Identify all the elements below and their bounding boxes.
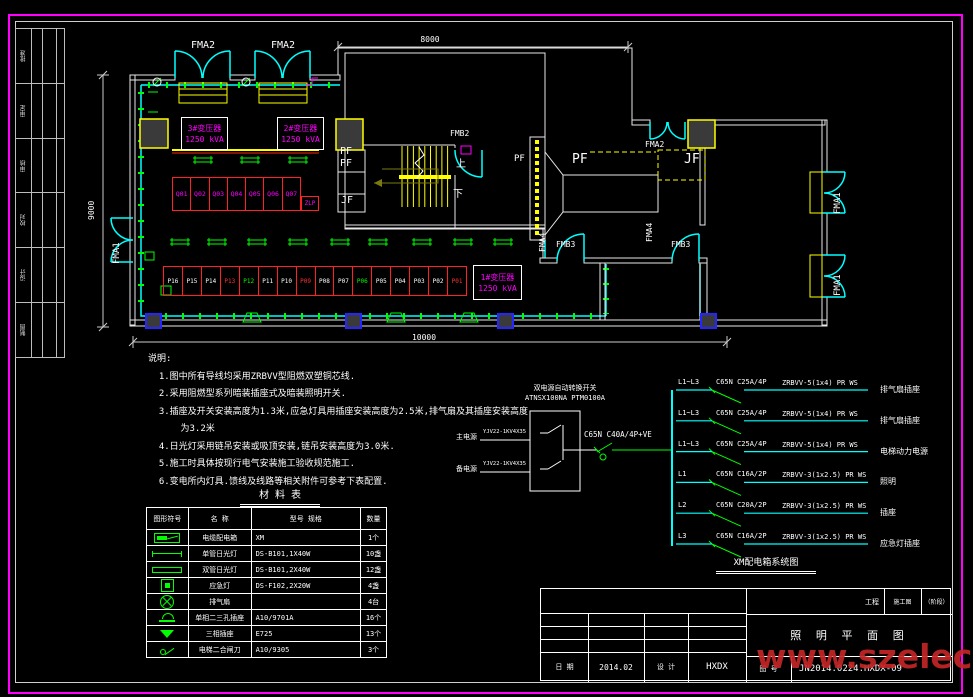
material-symbol-icon bbox=[152, 567, 182, 573]
stage-value: 施工图 bbox=[884, 589, 921, 614]
branch-phase: L1 bbox=[678, 470, 686, 478]
material-table-row: 双管日光灯 DS-B101,2X40W 12盏 bbox=[147, 561, 386, 577]
note-line: 1.图中所有导线均采用ZRBVV型阻燃双塑铜芯线. bbox=[148, 369, 528, 387]
date-label: 日 期 bbox=[541, 652, 588, 682]
branch-load: 排气扇插座 bbox=[880, 415, 920, 426]
branch-breaker: C65N C25A/4P bbox=[716, 409, 767, 417]
material-table-row: 电梯二合闸刀 A10/9305 3个 bbox=[147, 641, 386, 657]
lv-panel-cell: P14 bbox=[201, 267, 220, 295]
circuit-branch: L1~L3 C65N C25A/4P ZRBVV-5(1x4) PR WS 电梯… bbox=[676, 439, 968, 470]
branch-cable: ZRBVV-3(1x2.5) PR WS bbox=[782, 471, 866, 479]
branch-phase: L1~L3 bbox=[678, 378, 699, 386]
material-table-row: 排气扇 4台 bbox=[147, 593, 386, 609]
transformer-1: 1#变压器 1250 kVA bbox=[473, 265, 522, 300]
door-label-fma2-a: FMA2 bbox=[176, 41, 230, 51]
circuit-branch: L2 C65N C20A/2P ZRBVV-3(1x2.5) PR WS 插座 bbox=[676, 500, 968, 531]
lv-panel-cell: P01 bbox=[447, 267, 466, 295]
cad-sheet: 批准 审定 审核 校对 bbox=[0, 0, 973, 697]
branch-load: 应急灯插座 bbox=[880, 538, 920, 549]
lv-panel-cell: P06 bbox=[352, 267, 371, 295]
dim-bottom: 10000 bbox=[398, 334, 450, 342]
material-symbol-icon bbox=[159, 644, 175, 656]
room-label-jf2: JF bbox=[684, 153, 700, 166]
design-label: 设 计 bbox=[644, 652, 688, 682]
branch-phase: L1~L3 bbox=[678, 409, 699, 417]
room-label-pf3: PF bbox=[514, 155, 525, 164]
lv-panel-cell: P03 bbox=[409, 267, 428, 295]
material-symbol-icon bbox=[152, 551, 182, 557]
hv-panel-cell: Q03 bbox=[209, 178, 227, 210]
room-label-jf1: JF bbox=[341, 196, 353, 206]
material-table-title: 材 料 表 bbox=[240, 486, 320, 507]
branch-breaker: C65N C25A/4P bbox=[716, 378, 767, 386]
branch-cable: ZRBVV-3(1x2.5) PR WS bbox=[782, 502, 866, 510]
branch-cable: ZRBVV-5(1x4) PR WS bbox=[782, 441, 858, 449]
material-symbol-icon bbox=[159, 613, 175, 623]
hv-panel-cell: Q04 bbox=[227, 178, 245, 210]
door-label-fma4-a: FMA4 bbox=[539, 216, 547, 252]
transformer-3: 3#变压器 1250 kVA bbox=[181, 117, 228, 150]
material-table-row: 单管日光灯 DS-B101,1X40W 10盏 bbox=[147, 545, 386, 561]
fmb2-tag bbox=[461, 146, 471, 154]
branch-cable: ZRBVV-5(1x4) PR WS bbox=[782, 379, 858, 387]
circuit-branch: L1~L3 C65N C25A/4P ZRBVV-5(1x4) PR WS 排气… bbox=[676, 377, 968, 408]
branch-cable: ZRBVV-3(1x2.5) PR WS bbox=[782, 533, 866, 541]
room-label-pf1: PF bbox=[340, 147, 352, 157]
room-label-pf2: PF bbox=[340, 159, 352, 169]
input-main-label: 主电源 bbox=[456, 434, 477, 441]
ats-model: ATNSX100NA PTM0100A bbox=[505, 395, 625, 402]
material-symbol-icon bbox=[154, 533, 180, 543]
branch-breaker: C65N C20A/2P bbox=[716, 501, 767, 509]
circuit-branch: L1~L3 C65N C25A/4P ZRBVV-5(1x4) PR WS 排气… bbox=[676, 408, 968, 439]
stair-up-label: 上 bbox=[456, 160, 466, 170]
hv-panel-cell: Q02 bbox=[190, 178, 208, 210]
door-label-fmb3-a: FMB3 bbox=[556, 241, 575, 249]
lv-panel-cell: P02 bbox=[428, 267, 447, 295]
door-label-fma1-r1: FMA1 bbox=[834, 170, 843, 214]
material-table-row: 电缆配电箱 XM 1个 bbox=[147, 529, 386, 545]
circuit-branches: L1~L3 C65N C25A/4P ZRBVV-5(1x4) PR WS 排气… bbox=[676, 377, 968, 562]
input-backup-label: 备电源 bbox=[456, 466, 477, 473]
note-line: 4.日光灯采用链吊安装或吸顶安装,链吊安装高度为3.0米. bbox=[148, 439, 528, 457]
lv-panel-row: P16P15P14P13P12P11P10P09P08P07P06P05P04P… bbox=[163, 266, 467, 296]
watermark: www.szelec.cc bbox=[756, 637, 973, 676]
ats-name: 双电源自动转换开关 bbox=[505, 385, 625, 392]
date-value: 2014.02 bbox=[588, 652, 644, 682]
input-main-cable: YJV22-1KV4X35 bbox=[483, 430, 526, 436]
branch-phase: L1~L3 bbox=[678, 440, 699, 448]
branch-cable: ZRBVV-5(1x4) PR WS bbox=[782, 410, 858, 418]
dim-left: 9000 bbox=[88, 180, 96, 220]
door-label-fma1-left: FMA1 bbox=[113, 224, 122, 264]
material-table-row: 应急灯 DS-F102,2X20W 4盏 bbox=[147, 577, 386, 593]
note-line: 2.采用阻燃型系列暗装插座式及暗装照明开关. bbox=[148, 386, 528, 404]
main-breaker-label: C65N C40A/4P+VE bbox=[584, 431, 652, 439]
door-label-fmb3-b: FMB3 bbox=[671, 241, 690, 249]
project-label: 工程 bbox=[746, 589, 884, 614]
branch-breaker: C65N C25A/4P bbox=[716, 440, 767, 448]
hv-panel-cell: Q05 bbox=[245, 178, 263, 210]
hv-panel-row: Q01Q02Q03Q04Q05Q06Q07 bbox=[172, 177, 301, 211]
note-line: 6.变电所内灯具.馈线及线路等相关附件可参考下表配置. bbox=[148, 474, 528, 492]
material-symbol-icon bbox=[161, 579, 174, 592]
branch-load: 电梯动力电源 bbox=[880, 446, 928, 457]
circuit-branch: L1 C65N C16A/2P ZRBVV-3(1x2.5) PR WS 照明 bbox=[676, 469, 968, 500]
design-value: HXDX bbox=[688, 652, 746, 682]
branch-load: 排气扇插座 bbox=[880, 384, 920, 395]
lv-panel-cell: P04 bbox=[390, 267, 409, 295]
branch-phase: L2 bbox=[678, 501, 686, 509]
lv-panel-cell: P15 bbox=[182, 267, 201, 295]
stage-paren: （阶段） bbox=[921, 589, 952, 614]
lv-panel-cell: P10 bbox=[277, 267, 296, 295]
system-diagram-caption: XM配电箱系统图 bbox=[716, 555, 816, 574]
branch-load: 插座 bbox=[880, 507, 896, 518]
room-label-pf4: PF bbox=[572, 153, 588, 166]
zlp-panel: ZLP bbox=[301, 196, 319, 211]
hv-panel-cell: Q01 bbox=[173, 178, 190, 210]
branch-breaker: C65N C16A/2P bbox=[716, 532, 767, 540]
lv-panel-cell: P16 bbox=[164, 267, 182, 295]
material-symbol-icon bbox=[160, 630, 174, 638]
magenta-riser bbox=[306, 78, 318, 85]
material-table: 图形符号 名 称 型号 规格 数量 电缆配电箱 XM 1个 单管日光灯 DS-B… bbox=[146, 507, 387, 658]
input-backup-cable: YJV22-1KV4X35 bbox=[483, 462, 526, 468]
note-line: 说明: bbox=[148, 351, 528, 369]
stair-down-label: 下 bbox=[453, 190, 463, 200]
material-table-row: 三相插座 E725 13个 bbox=[147, 625, 386, 641]
material-table-header: 图形符号 名 称 型号 规格 数量 bbox=[147, 508, 386, 529]
staircase bbox=[374, 146, 451, 207]
door-label-fmb2: FMB2 bbox=[450, 130, 469, 138]
door-label-fma1-r2: FMA1 bbox=[834, 252, 843, 296]
transformer-2: 2#变压器 1250 kVA bbox=[277, 117, 324, 150]
note-line: 3.插座及开关安装高度为1.3米,应急灯具用插座安装高度为2.5米,排气扇及其插… bbox=[148, 404, 528, 422]
material-symbol-icon bbox=[160, 595, 174, 609]
material-table-row: 单相二三孔插座 A10/9701A 16个 bbox=[147, 609, 386, 625]
lv-panel-cell: P07 bbox=[333, 267, 352, 295]
branch-phase: L3 bbox=[678, 532, 686, 540]
lv-panel-cell: P09 bbox=[296, 267, 315, 295]
hv-panel-cell: Q07 bbox=[282, 178, 300, 210]
door-label-fma2-c: FMA2 bbox=[645, 141, 664, 149]
door-label-fma4-b: FMA4 bbox=[646, 206, 654, 242]
lv-panel-cell: P08 bbox=[315, 267, 334, 295]
branch-breaker: C65N C16A/2P bbox=[716, 470, 767, 478]
hv-panel-cell: Q06 bbox=[263, 178, 281, 210]
lv-panel-cell: P13 bbox=[220, 267, 239, 295]
lv-panel-cell: P05 bbox=[371, 267, 390, 295]
door-label-fma2-b: FMA2 bbox=[256, 41, 310, 51]
branch-load: 照明 bbox=[880, 476, 896, 487]
lv-panel-cell: P12 bbox=[239, 267, 258, 295]
lv-panel-cell: P11 bbox=[258, 267, 277, 295]
dim-top: 8000 bbox=[408, 36, 452, 44]
